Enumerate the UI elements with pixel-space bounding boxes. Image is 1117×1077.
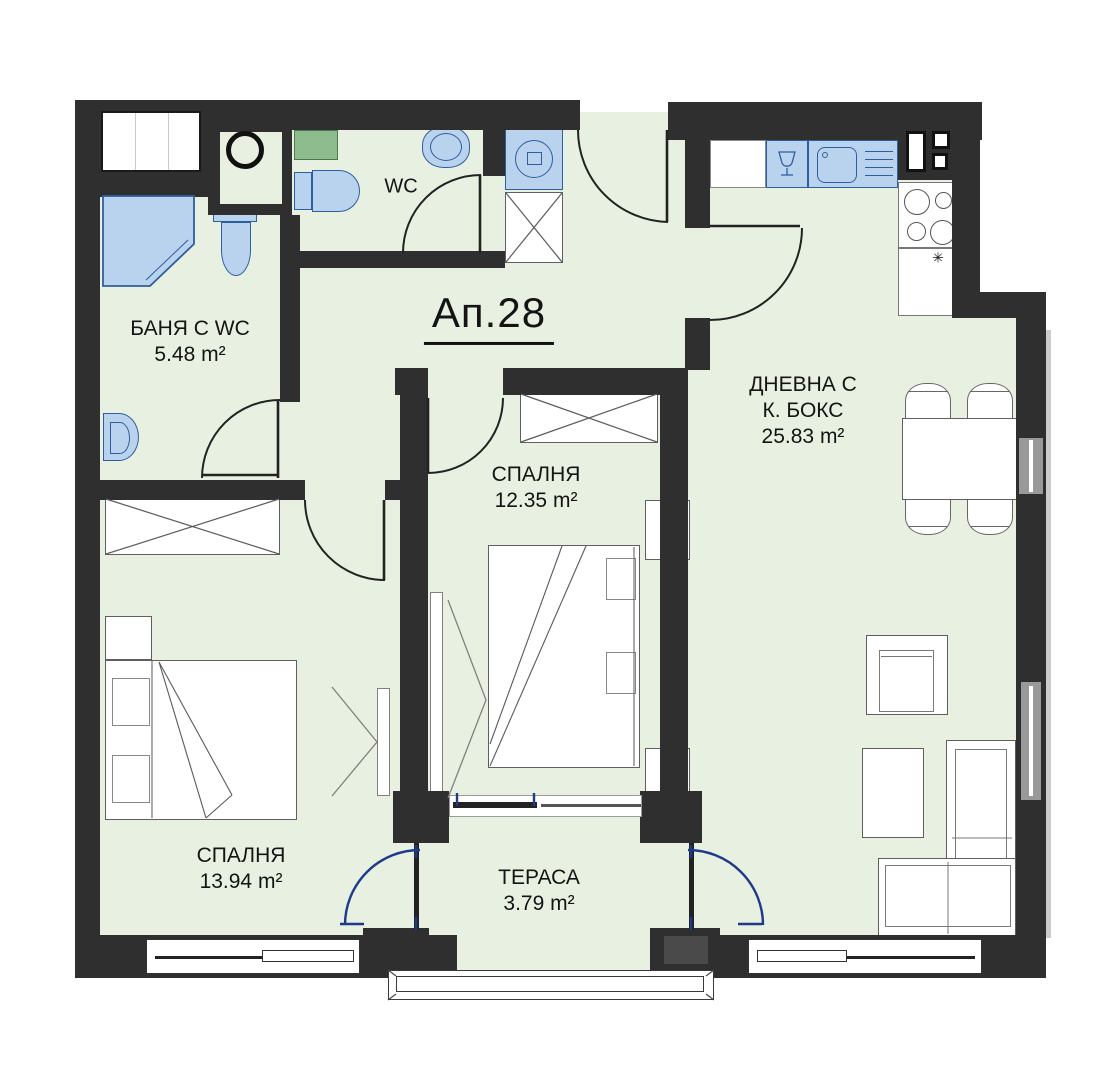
terrace-left-door-arc [345, 850, 420, 925]
bathroom-door-arc [202, 400, 280, 478]
room-name: К. БОКС [749, 398, 857, 424]
room-label-bedroom-left: СПАЛНЯ 13.94 m² [197, 843, 286, 895]
sofa-divider-lines [948, 838, 1012, 934]
bedroom-left-door-arc [305, 500, 385, 580]
kitchen-counter-mark: ✳ [932, 249, 944, 266]
headboard-lines [152, 547, 634, 818]
sliding-chevrons [332, 600, 486, 798]
floor-plan: Ап.28 БАНЯ С WC 5.48 m² WC СПАЛНЯ 12.35 … [0, 0, 1117, 1077]
room-name: WC [384, 175, 417, 200]
shower-cabin [103, 196, 194, 286]
room-area: 25.83 m² [749, 424, 857, 450]
terrace-right-door-arc [688, 850, 763, 925]
room-label-bedroom-middle: СПАЛНЯ 12.35 m² [492, 462, 581, 514]
room-name: БАНЯ С WC [130, 316, 249, 342]
entrance-door-arc [578, 130, 668, 222]
room-label-wc: WC [384, 175, 417, 200]
room-area: 3.79 m² [498, 891, 580, 917]
wine-glass-icon [779, 152, 795, 175]
room-name: ТЕРАСА [498, 865, 580, 891]
room-area: 13.94 m² [197, 869, 286, 895]
room-name: ДНЕВНА С [749, 372, 857, 398]
room-name: СПАЛНЯ [197, 843, 286, 869]
bed-fold-lines [159, 546, 586, 818]
living-door-arc [710, 228, 802, 320]
room-area: 12.35 m² [492, 488, 581, 514]
room-name: СПАЛНЯ [492, 462, 581, 488]
room-area: 5.48 m² [130, 342, 249, 368]
room-label-bathroom: БАНЯ С WC 5.48 m² [130, 316, 249, 368]
railing-corner-ticks [388, 970, 714, 1000]
apartment-label: Ап.28 [424, 287, 554, 345]
room-label-living: ДНЕВНА С К. БОКС 25.83 m² [749, 372, 857, 450]
room-label-terrace: ТЕРАСА 3.79 m² [498, 865, 580, 917]
